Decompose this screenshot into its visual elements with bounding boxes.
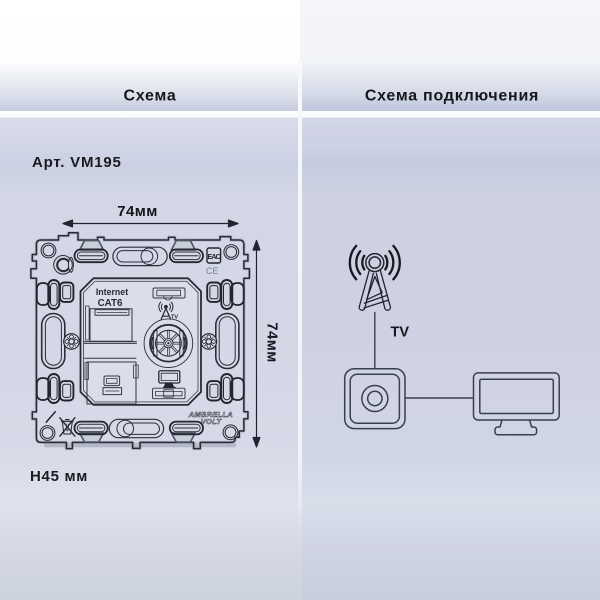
svg-text:Схема подключения: Схема подключения [365, 88, 539, 105]
svg-text:Схема: Схема [123, 88, 176, 105]
svg-text:H45 мм: H45 мм [30, 468, 88, 485]
svg-text:CE: CE [206, 266, 219, 276]
svg-text:Арт. VM195: Арт. VM195 [32, 154, 122, 171]
svg-text:74мм: 74мм [264, 322, 281, 362]
svg-text:EAC: EAC [207, 252, 220, 261]
svg-text:TV: TV [391, 325, 410, 341]
svg-text:VOLT: VOLT [201, 417, 223, 426]
svg-text:CAT6: CAT6 [98, 298, 123, 309]
svg-text:74мм: 74мм [117, 203, 157, 220]
svg-text:Internet: Internet [96, 287, 128, 297]
